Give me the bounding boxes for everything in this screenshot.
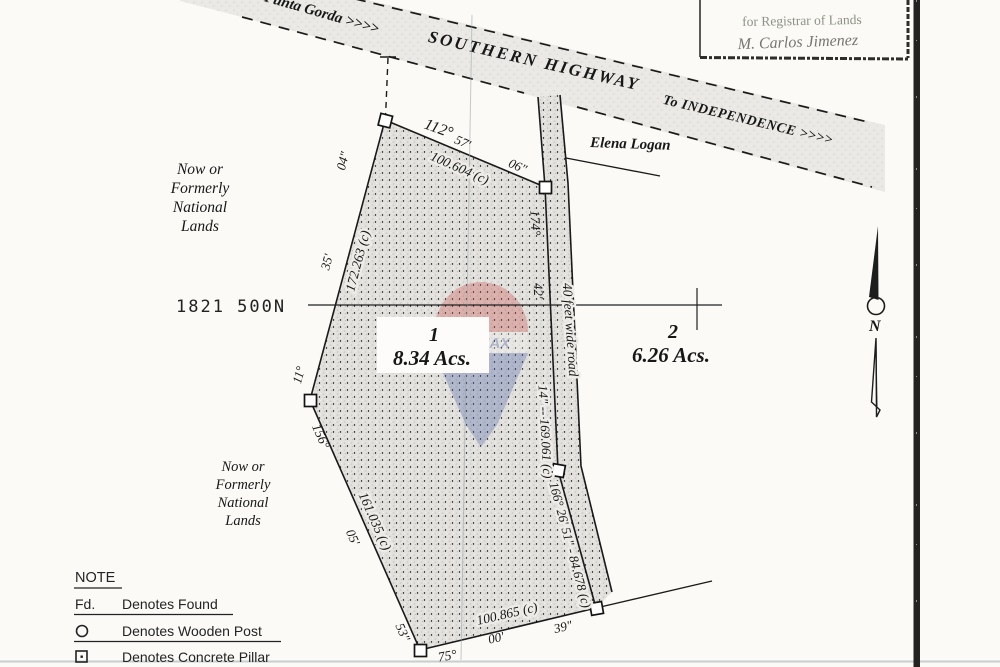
concrete-pillar-icon-dot xyxy=(81,656,83,658)
national-lands-line: Now or xyxy=(176,161,224,178)
bearing-road-deg: 174° xyxy=(527,210,543,237)
legend-concrete-pillar-text: Denotes Concrete Pillar xyxy=(122,649,270,665)
adjoiner-elena-logan: Elena Logan xyxy=(589,135,671,154)
north-label: N xyxy=(868,318,882,335)
grid-northing-label: 1821 500N xyxy=(176,297,286,317)
parcel-2-number: 2 xyxy=(667,321,678,343)
pillar-marker xyxy=(415,645,427,657)
parcel-2-area: 6.26 Acs. xyxy=(632,343,710,367)
survey-plan-map: From Punta Gorda >>>> SOUTHERN HIGHWAY T… xyxy=(0,0,1000,667)
pillar-marker xyxy=(540,182,552,194)
pillar-marker xyxy=(378,113,393,128)
legend-fd-text: Denotes Found xyxy=(122,596,218,612)
survey-plan-page: From Punta Gorda >>>> SOUTHERN HIGHWAY T… xyxy=(0,0,1000,667)
legend-title: NOTE xyxy=(75,570,116,586)
parcel-1-number: 1 xyxy=(429,324,439,346)
national-lands-line: Formerly xyxy=(170,180,230,197)
national-lands-line: Lands xyxy=(224,513,261,529)
national-lands-line: Lands xyxy=(180,218,219,235)
page-border-right xyxy=(914,0,921,667)
stamp-registrar-text: for Registrar of Lands xyxy=(742,12,862,29)
pillar-marker xyxy=(305,395,317,407)
national-lands-line: Formerly xyxy=(215,477,271,493)
bearing-road-min: 42' xyxy=(531,282,547,299)
legend-wooden-post-text: Denotes Wooden Post xyxy=(122,623,262,639)
national-lands-line: Now or xyxy=(220,459,264,475)
national-lands-line: National xyxy=(172,199,227,216)
national-lands-line: National xyxy=(217,495,269,511)
parcel-1-area: 8.34 Acs. xyxy=(393,346,471,370)
legend-fd-symbol: Fd. xyxy=(75,596,95,612)
